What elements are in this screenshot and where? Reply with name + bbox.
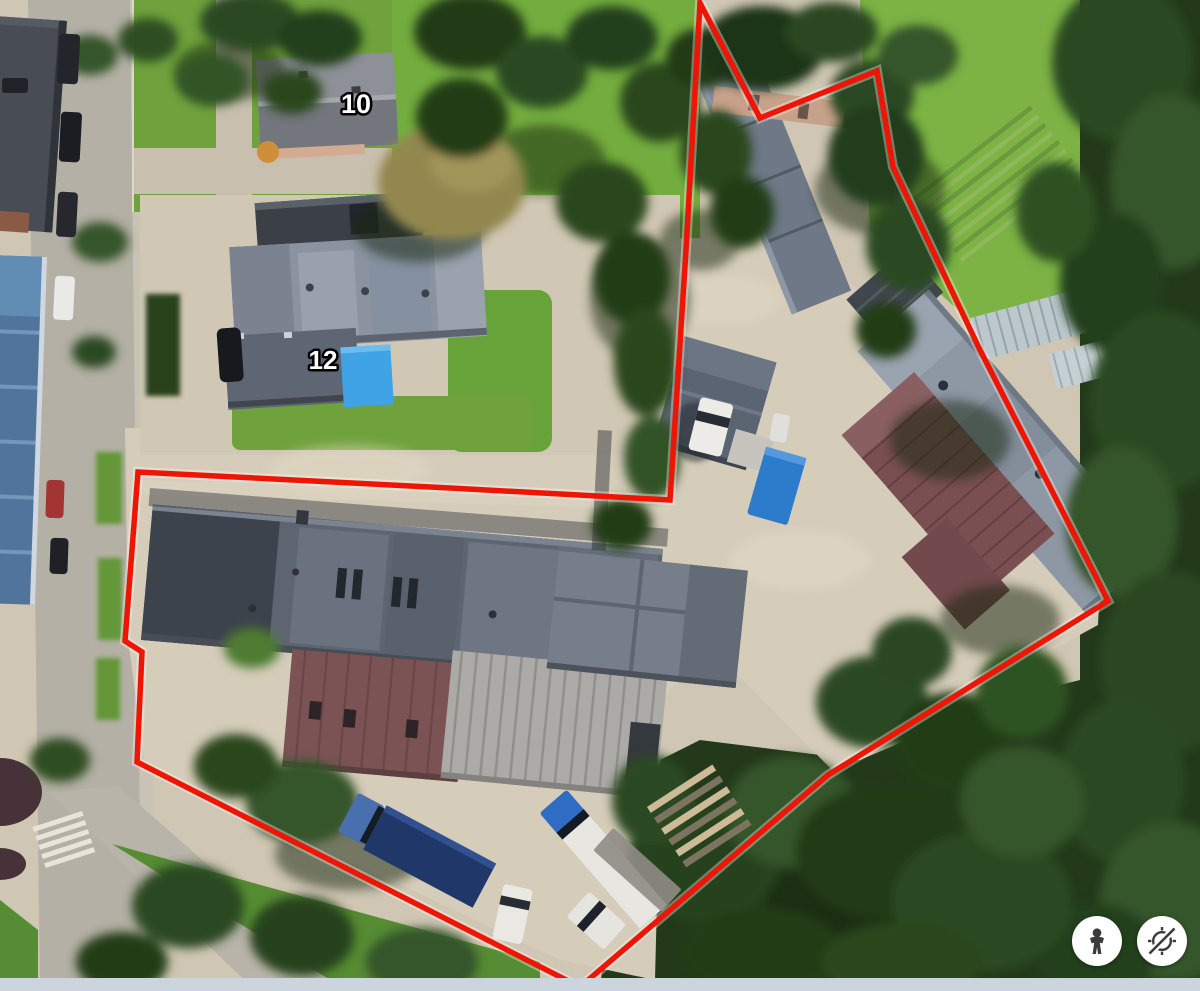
- map-viewport[interactable]: 10 12: [0, 0, 1200, 991]
- pegman-icon: [1083, 927, 1111, 955]
- compass-disabled-icon: [1146, 925, 1178, 957]
- building-number-12: 12: [309, 345, 338, 375]
- car-dark: [216, 327, 244, 383]
- aerial-imagery: 10 12: [0, 0, 1200, 991]
- building-east-extension: [547, 551, 748, 688]
- bottom-strip: [0, 978, 1200, 991]
- building-number-10: 10: [341, 89, 371, 119]
- compass-disabled-button[interactable]: [1137, 916, 1187, 966]
- building-house-12: [224, 326, 360, 410]
- pegman-button[interactable]: [1072, 916, 1122, 966]
- blue-tarp-roof: [340, 344, 394, 407]
